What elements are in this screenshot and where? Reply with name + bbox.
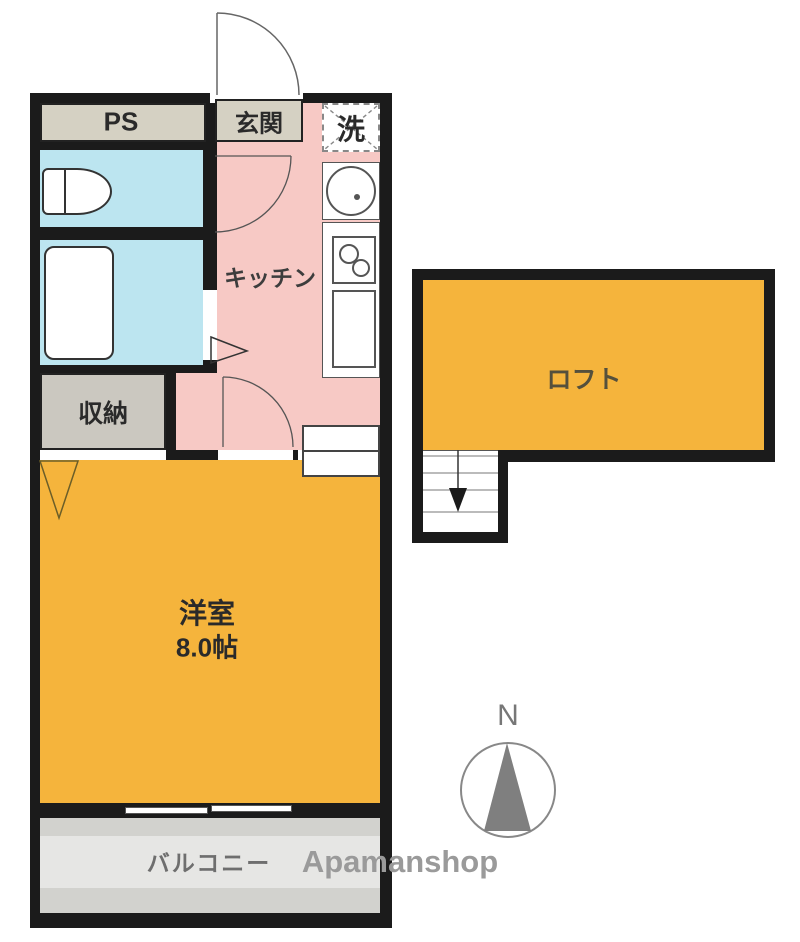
wall-storage-right <box>166 373 176 460</box>
bathtub-icon <box>44 246 114 360</box>
label-balcony: バルコニー <box>147 844 272 878</box>
wall-under-ps <box>40 142 206 150</box>
stairs-wall-bottom <box>412 532 508 543</box>
window-balcony-right <box>211 805 292 812</box>
wall-bath-storage <box>40 365 206 373</box>
sink-icon <box>326 166 376 216</box>
loft-wall-top <box>412 269 775 280</box>
stairs <box>423 450 498 532</box>
label-western-room-size: 8.0帖 <box>176 628 238 665</box>
compass-needle-icon <box>484 743 531 831</box>
wall-toilet-bath <box>40 227 206 240</box>
label-storage: 収納 <box>78 394 128 430</box>
wall-bottom <box>30 913 392 928</box>
toilet-tank-line <box>64 170 66 213</box>
wall-top-left <box>30 93 210 103</box>
wall-kitchen-lower-stub <box>203 360 217 373</box>
label-ps: PS <box>104 107 139 138</box>
loft-wall-left <box>412 269 423 543</box>
stairs-wall-right <box>498 462 508 543</box>
wall-room-top <box>166 450 218 460</box>
peninsula-divider <box>304 450 378 452</box>
toilet-icon <box>42 168 112 215</box>
label-loft: ロフト <box>546 360 621 396</box>
room-kitchen-alcove <box>176 373 217 450</box>
kitchen-peninsula-counter <box>302 425 380 477</box>
floorplan-canvas: PS 玄関 洗 キッチン 収納 洋室 8.0帖 ロフト バルコニー Apaman… <box>0 0 800 942</box>
wall-top-right <box>303 93 392 103</box>
loft-wall-right <box>764 269 775 462</box>
stove-burner-2 <box>352 259 370 277</box>
window-balcony-left <box>125 807 208 814</box>
label-western-room: 洋室 <box>179 592 235 632</box>
loft-wall-bottom <box>498 450 775 462</box>
label-kitchen: キッチン <box>224 259 316 293</box>
label-laundry: 洗 <box>337 108 365 148</box>
compass-north-label: N <box>497 699 519 733</box>
kitchen-lower-cabinet <box>332 290 376 368</box>
watermark: Apamanshop <box>302 844 498 880</box>
sink-drain-dot <box>354 194 360 200</box>
entrance-door-arc <box>217 13 299 95</box>
compass <box>461 743 555 837</box>
label-entrance: 玄関 <box>235 104 283 139</box>
stove-icon <box>332 236 376 284</box>
